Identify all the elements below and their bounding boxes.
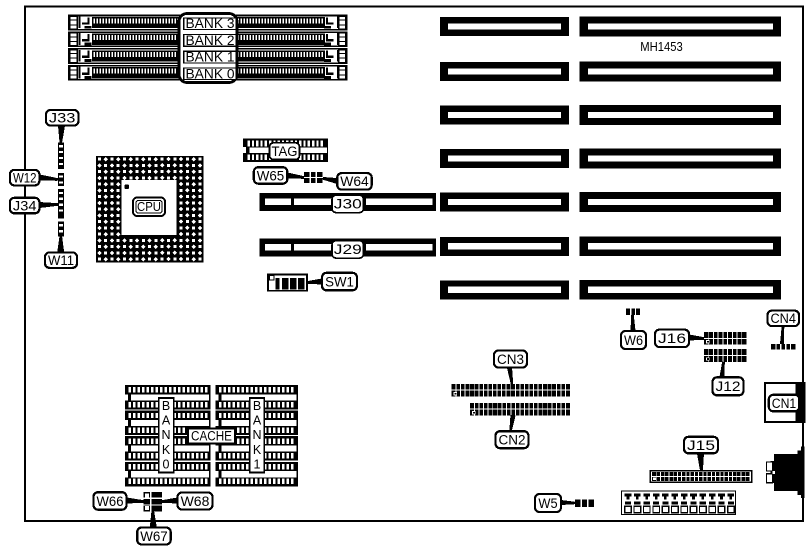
svg-text:0: 0 [163,457,170,471]
svg-text:J33: J33 [49,111,76,126]
svg-text:K: K [253,443,262,457]
svg-text:MH1453: MH1453 [640,39,683,54]
svg-text:CN2: CN2 [499,433,526,448]
svg-text:1: 1 [254,457,261,471]
svg-text:J34: J34 [13,198,37,213]
svg-text:A: A [162,414,171,428]
svg-text:J12: J12 [716,379,741,394]
svg-text:W66: W66 [97,494,124,509]
svg-text:W11: W11 [48,253,74,268]
svg-text:N: N [252,428,261,442]
svg-text:CN4: CN4 [770,311,796,326]
svg-text:CN3: CN3 [497,352,524,367]
svg-text:W12: W12 [13,171,37,186]
svg-text:J30: J30 [334,197,362,212]
svg-text:B: B [162,399,170,413]
svg-text:CN1: CN1 [772,396,797,411]
svg-text:BANK 1: BANK 1 [186,50,235,65]
svg-text:W68: W68 [181,494,210,509]
svg-text:CPU: CPU [137,199,161,214]
svg-text:J29: J29 [334,242,362,257]
svg-text:W64: W64 [340,174,369,189]
svg-text:W6: W6 [624,333,643,348]
svg-text:W5: W5 [538,496,557,511]
svg-text:K: K [162,443,171,457]
svg-text:BANK 2: BANK 2 [186,33,235,48]
svg-text:N: N [161,428,170,442]
svg-text:J16: J16 [658,331,686,346]
svg-text:W67: W67 [140,529,168,544]
svg-text:W65: W65 [257,168,285,183]
svg-text:TAG: TAG [272,144,298,159]
svg-text:B: B [253,399,261,413]
svg-text:BANK 0: BANK 0 [186,66,235,81]
svg-text:J15: J15 [687,438,715,453]
svg-text:SW1: SW1 [325,274,354,289]
svg-text:A: A [253,414,262,428]
svg-text:BANK 3: BANK 3 [186,16,235,31]
svg-text:CACHE: CACHE [191,429,232,444]
